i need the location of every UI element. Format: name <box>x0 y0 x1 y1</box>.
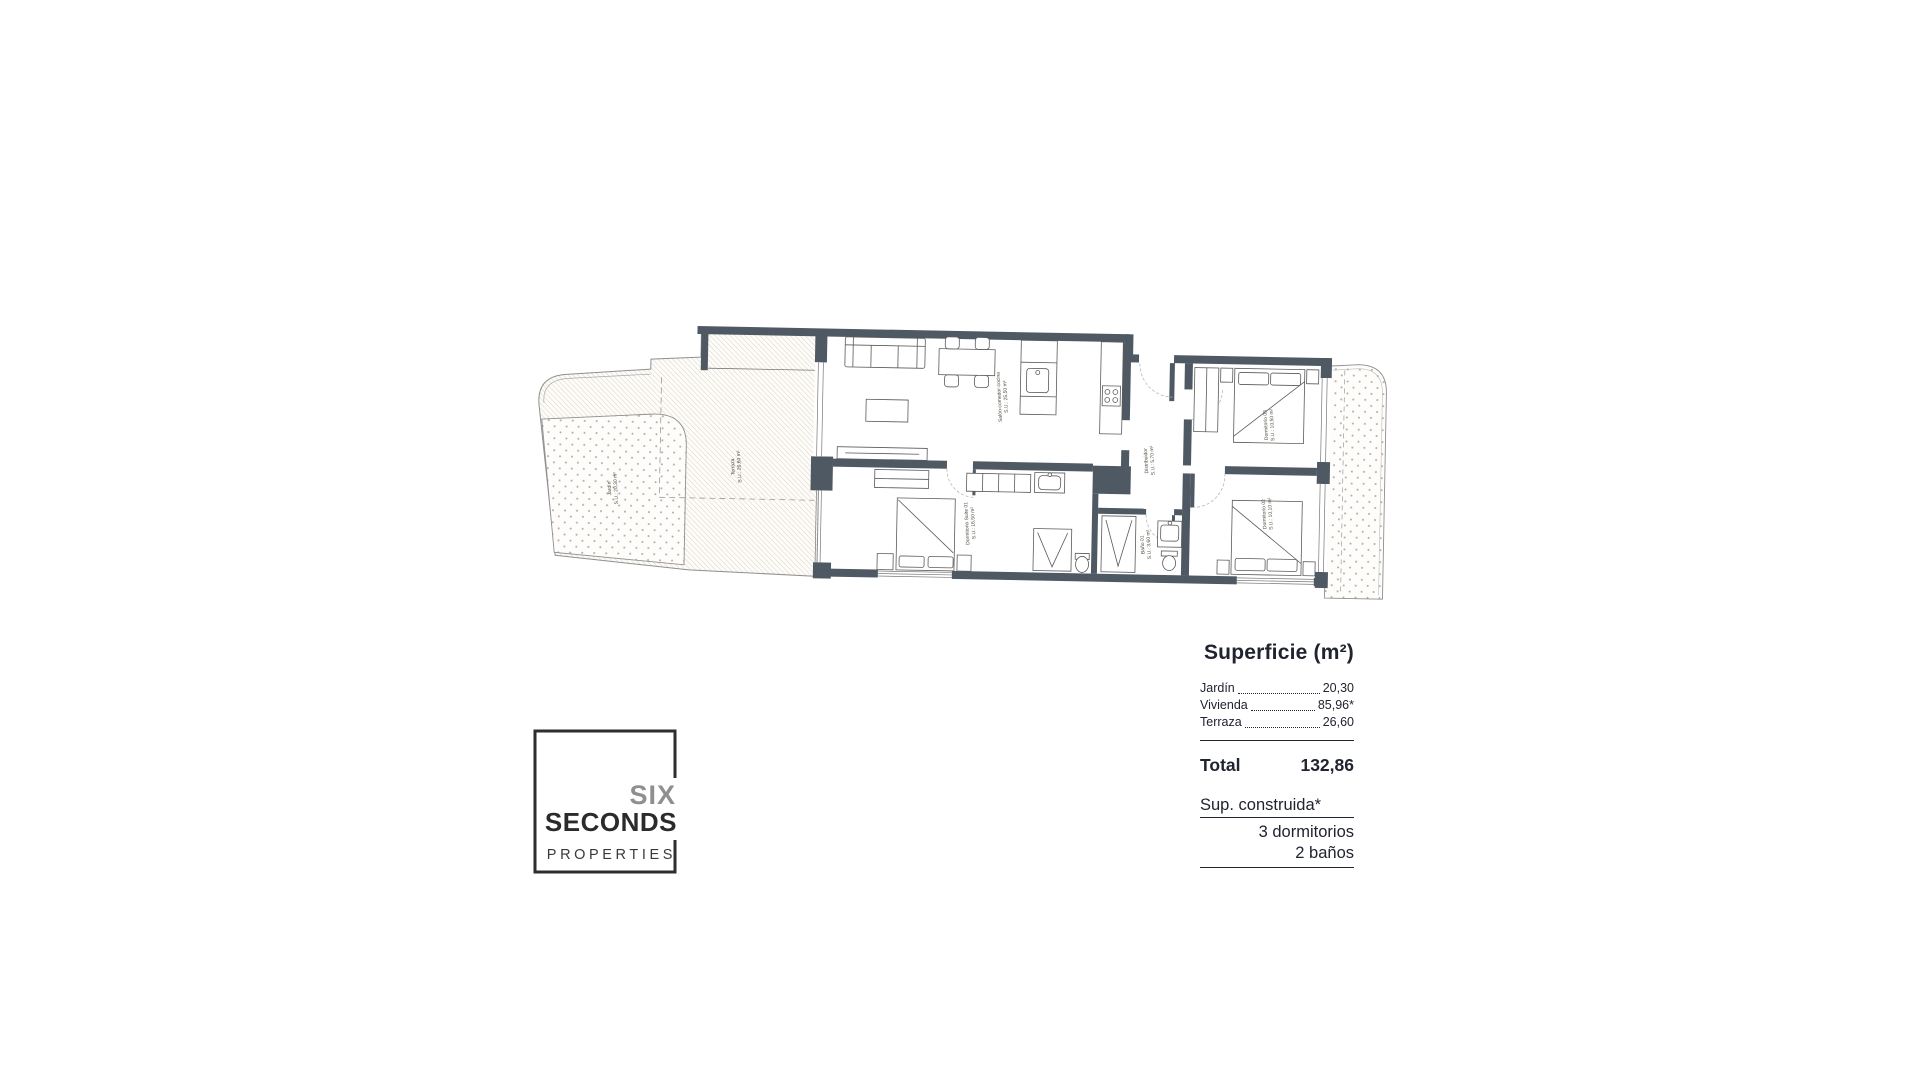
row-value: 26,60 <box>1323 714 1354 731</box>
room-label-dorm02: Dormitorio 02S.U.: 10,10 m² <box>1261 497 1275 530</box>
wardrobe-suite <box>875 469 929 488</box>
shower-ensuite <box>1033 528 1072 571</box>
wardrobe-ensuite <box>966 473 1030 492</box>
kitchen-island <box>1020 340 1057 415</box>
summary-title: Superficie (m²) <box>1200 641 1354 665</box>
svg-text:S.U.: 16,50 m²: S.U.: 16,50 m² <box>970 506 978 539</box>
dining-table <box>938 337 995 388</box>
sofa <box>845 337 926 369</box>
svg-text:S.U.: 25,50 m²: S.U.: 25,50 m² <box>1002 380 1010 413</box>
row-label: Jardín <box>1200 680 1235 697</box>
logo-word-properties: PROPERTIES <box>547 847 676 863</box>
built-surface-note: Sup. construida* <box>1200 796 1354 818</box>
vanity-sink-ensuite <box>1034 472 1064 493</box>
total-row: Total 132,86 <box>1200 755 1354 776</box>
room-label-suite: Dormitorio Suite 01S.U.: 16,50 m² <box>963 501 977 545</box>
bedrooms-count: 3 dormitorios <box>1200 822 1354 843</box>
shower-bath01 <box>1101 516 1136 573</box>
divider-line <box>1200 740 1354 741</box>
summary-row-terraza: Terraza 26,60 <box>1200 714 1354 731</box>
tv-unit <box>837 447 927 461</box>
kitchen-counter <box>1100 342 1124 434</box>
total-label: Total <box>1200 755 1241 776</box>
coffee-table <box>866 399 908 422</box>
row-label: Terraza <box>1200 714 1242 731</box>
wardrobe-dorm03 <box>1194 368 1219 432</box>
room-label-bano01: Baño 01S.U.: 3,60 m² <box>1139 529 1153 559</box>
total-value: 132,86 <box>1300 755 1354 776</box>
toilet-ensuite <box>1075 553 1089 572</box>
bathrooms-count: 2 baños <box>1200 843 1354 868</box>
room-label-dorm03: Dormitorio 03S.U.: 10,50 m² <box>1262 408 1276 441</box>
surface-summary: Superficie (m²) Jardín 20,30 Vivienda 85… <box>1200 641 1354 868</box>
floor-plan: JardínS.U.: 20,30 m² TerrazaS.U.: 26,60 … <box>527 323 1397 605</box>
svg-text:S.U.: 5,70 m²: S.U.: 5,70 m² <box>1149 445 1156 475</box>
bed-suite <box>896 498 955 571</box>
svg-text:S.U.: 3,60 m²: S.U.: 3,60 m² <box>1146 529 1153 559</box>
row-label: Vivienda <box>1200 697 1248 714</box>
leader-dots <box>1245 727 1320 728</box>
vanity-sink-bath01 <box>1157 521 1181 547</box>
row-value: 20,30 <box>1323 680 1354 697</box>
cooktop <box>1102 386 1120 406</box>
leader-dots <box>1238 693 1320 694</box>
summary-row-vivienda: Vivienda 85,96* <box>1200 697 1354 714</box>
side-garden-strip <box>1324 364 1386 599</box>
summary-rows: Jardín 20,30 Vivienda 85,96* Terraza 26,… <box>1200 680 1354 731</box>
page: JardínS.U.: 20,30 m² TerrazaS.U.: 26,60 … <box>0 0 1920 1080</box>
room-label-distribuidor: DistribuidorS.U.: 5,70 m² <box>1143 445 1157 475</box>
row-value: 85,96* <box>1318 697 1354 714</box>
leader-dots <box>1251 710 1315 711</box>
summary-row-jardin: Jardín 20,30 <box>1200 680 1354 697</box>
agency-logo: SIX SECONDS PROPERTIES <box>532 728 678 875</box>
logo-word-seconds: SECONDS <box>545 807 677 838</box>
furniture <box>835 335 1319 578</box>
room-label-salon: Salón-comedor-cocinaS.U.: 25,50 m² <box>996 371 1011 422</box>
toilet-bath01 <box>1161 551 1177 571</box>
